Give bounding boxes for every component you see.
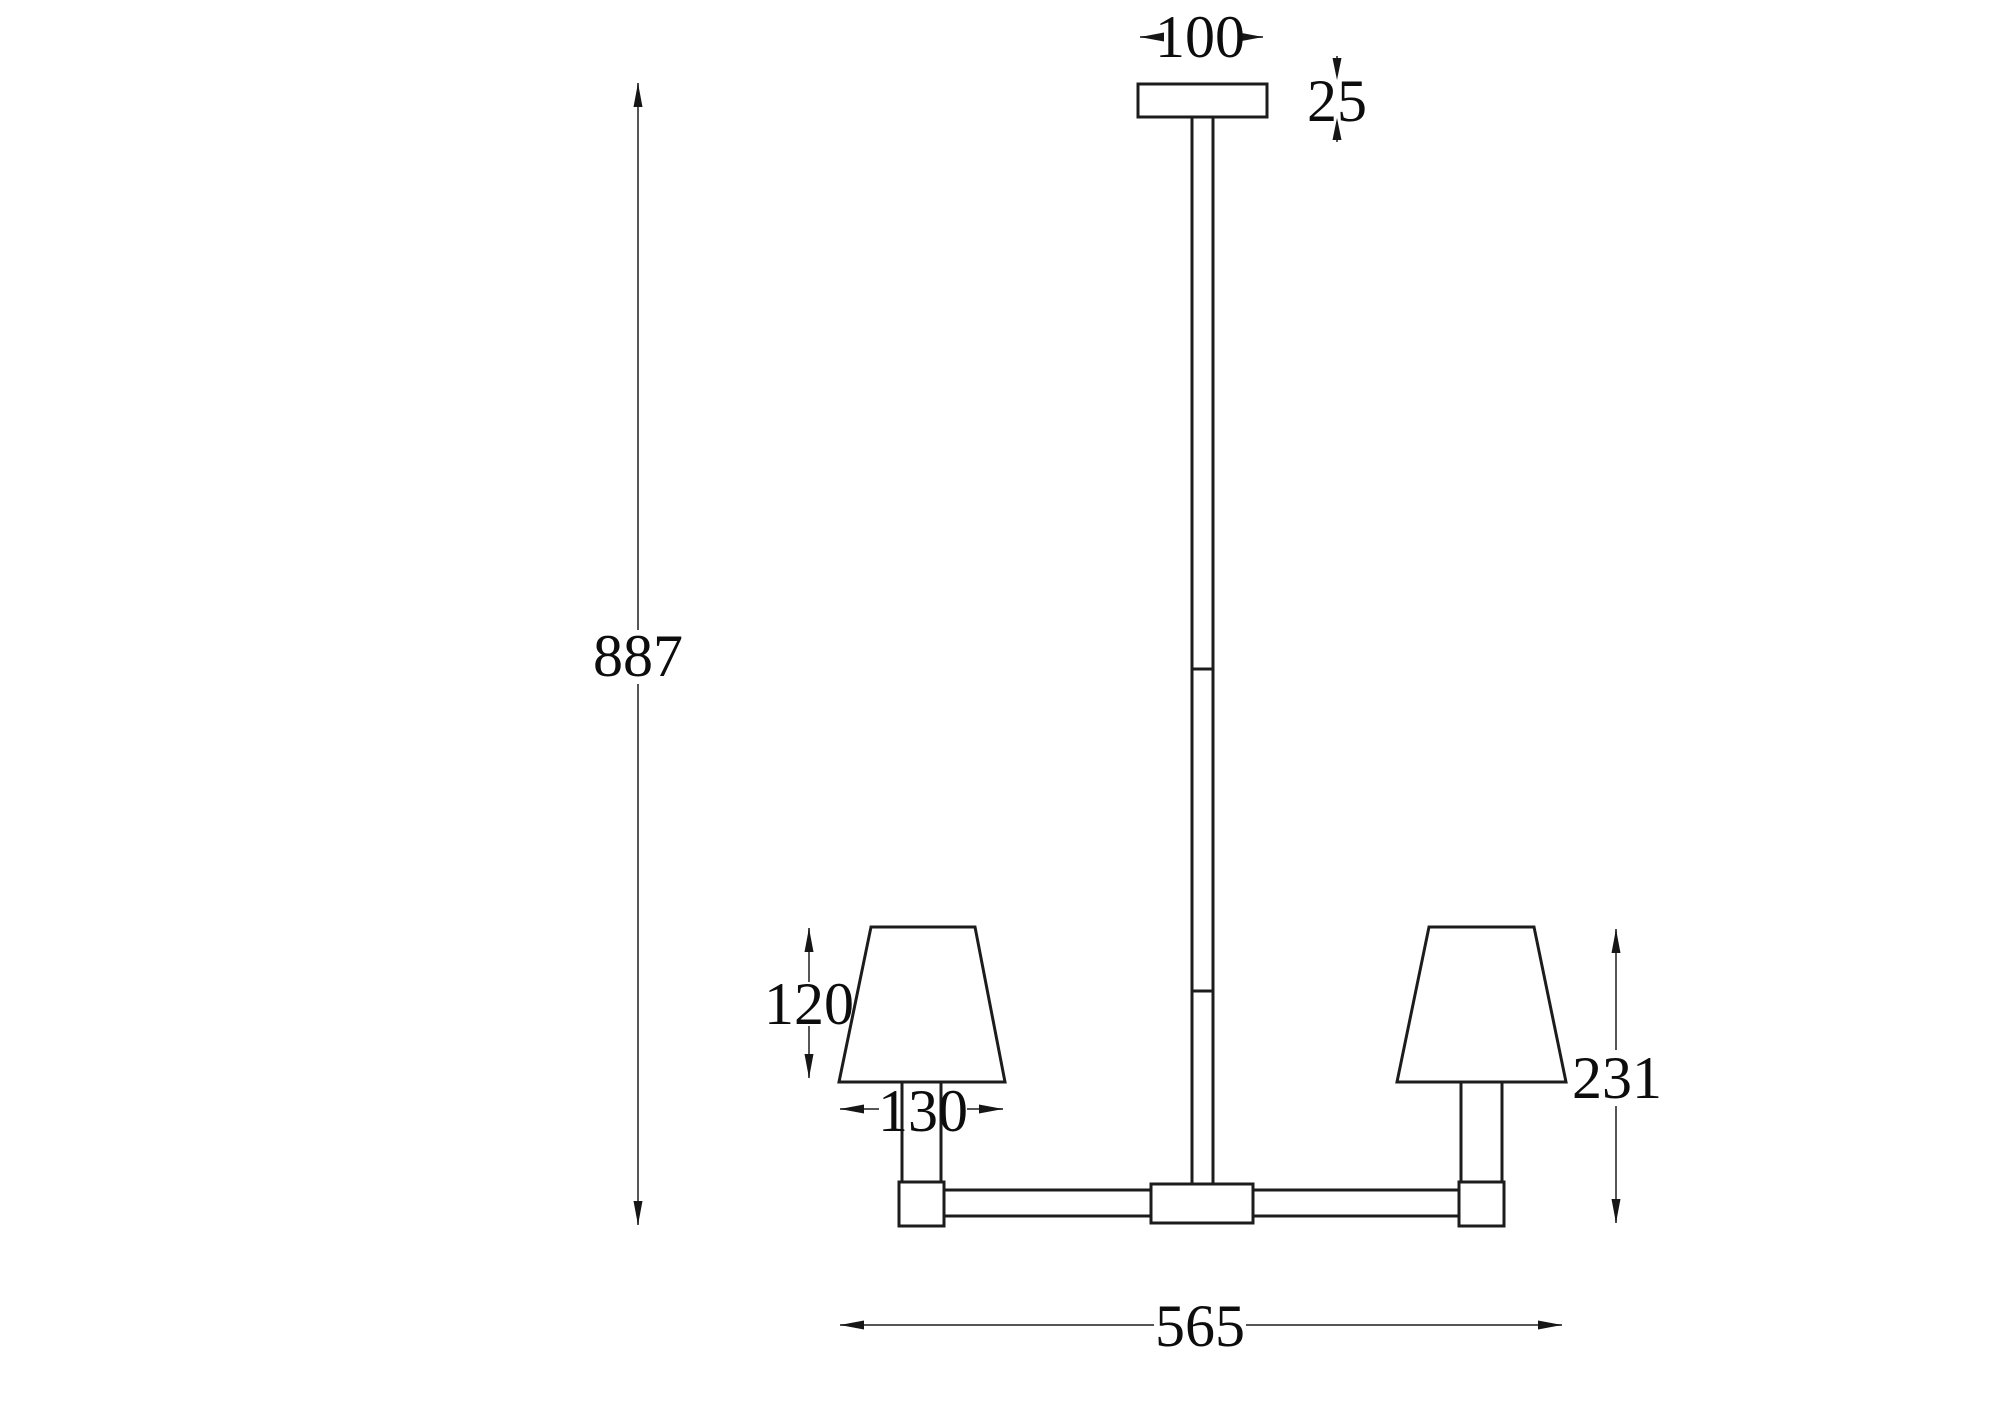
dim-shade-diameter: 130 bbox=[840, 1078, 1003, 1144]
left-arm bbox=[944, 1190, 1151, 1216]
left-lampshade bbox=[839, 927, 1005, 1082]
arrow-up-icon bbox=[1612, 929, 1621, 953]
arrow-down-icon bbox=[805, 1054, 814, 1078]
drawing-canvas: 100 25 887 120 bbox=[0, 0, 2000, 1413]
right-lamp-socket bbox=[1459, 1182, 1504, 1226]
arrow-down-icon bbox=[1612, 1199, 1621, 1223]
arrow-up-icon bbox=[805, 928, 814, 952]
dim-lamp-section-height-label: 231 bbox=[1572, 1045, 1662, 1111]
dim-overall-width: 565 bbox=[840, 1293, 1562, 1359]
central-hub bbox=[1151, 1184, 1253, 1223]
suspension-rod bbox=[1192, 117, 1213, 1184]
dim-canopy-width-label: 100 bbox=[1155, 4, 1245, 70]
dim-shade-height-label: 120 bbox=[764, 971, 854, 1037]
dim-shade-diameter-label: 130 bbox=[878, 1078, 968, 1144]
arrow-right-icon bbox=[979, 1105, 1003, 1114]
right-arm bbox=[1253, 1190, 1459, 1216]
right-lampshade bbox=[1397, 927, 1566, 1082]
dim-overall-width-label: 565 bbox=[1155, 1293, 1245, 1359]
pendant-lamp-drawing: 100 25 887 120 bbox=[0, 0, 2000, 1413]
lamp-fixture bbox=[839, 84, 1566, 1226]
arrow-right-icon bbox=[1538, 1321, 1562, 1330]
dim-overall-height-label: 887 bbox=[593, 623, 683, 689]
dim-canopy-height: 25 bbox=[1307, 56, 1367, 142]
arrow-down-icon bbox=[634, 1201, 643, 1225]
dim-lamp-section-height: 231 bbox=[1572, 929, 1662, 1223]
dim-canopy-height-label: 25 bbox=[1307, 68, 1367, 134]
dim-canopy-width: 100 bbox=[1140, 4, 1263, 70]
arrow-left-icon bbox=[840, 1321, 864, 1330]
arrow-left-icon bbox=[840, 1105, 864, 1114]
ceiling-canopy bbox=[1138, 84, 1267, 117]
dim-shade-height: 120 bbox=[764, 928, 854, 1078]
dim-overall-height: 887 bbox=[593, 83, 683, 1225]
arrow-up-icon bbox=[634, 83, 643, 107]
right-lamp-holder bbox=[1461, 1082, 1502, 1182]
left-lamp-socket bbox=[899, 1182, 944, 1226]
